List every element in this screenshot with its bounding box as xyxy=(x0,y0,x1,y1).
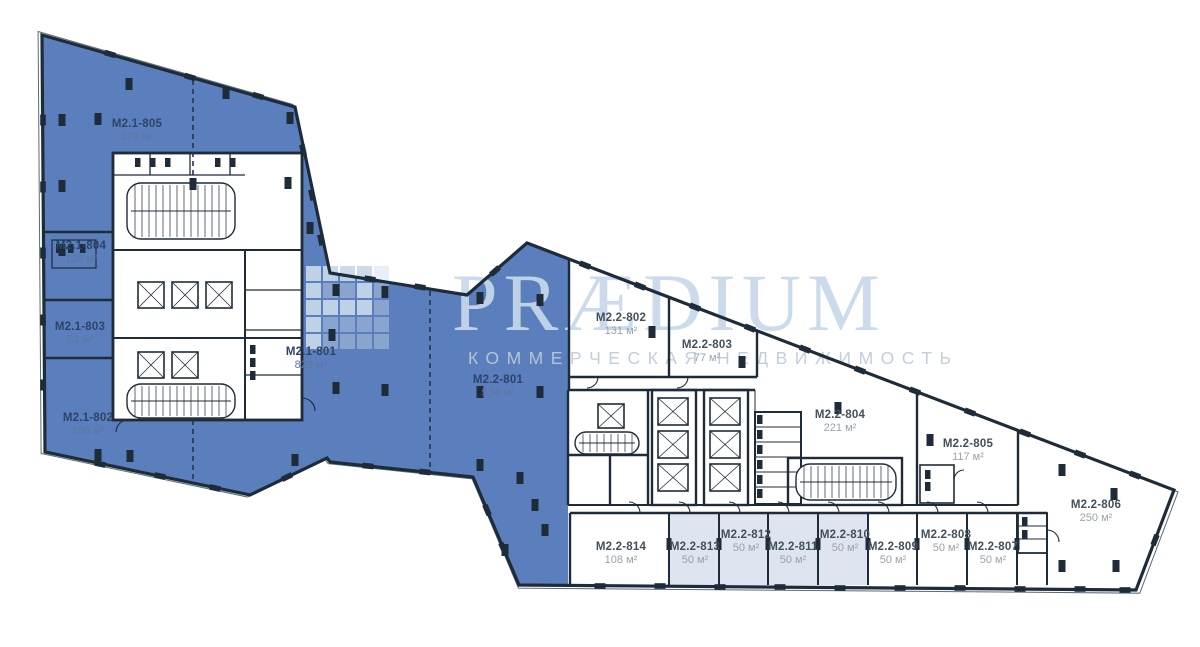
praedium-logo xyxy=(306,266,389,349)
watermark-subtitle: КОММЕРЧЕСКАЯ НЕДВИЖИМОСТЬ xyxy=(468,348,959,368)
floor-plan-page: PRÆDIUM КОММЕРЧЕСКАЯ НЕДВИЖИМОСТЬ xyxy=(0,0,1200,647)
floor-plan-drawing: PRÆDIUM КОММЕРЧЕСКАЯ НЕДВИЖИМОСТЬ xyxy=(0,0,1200,647)
